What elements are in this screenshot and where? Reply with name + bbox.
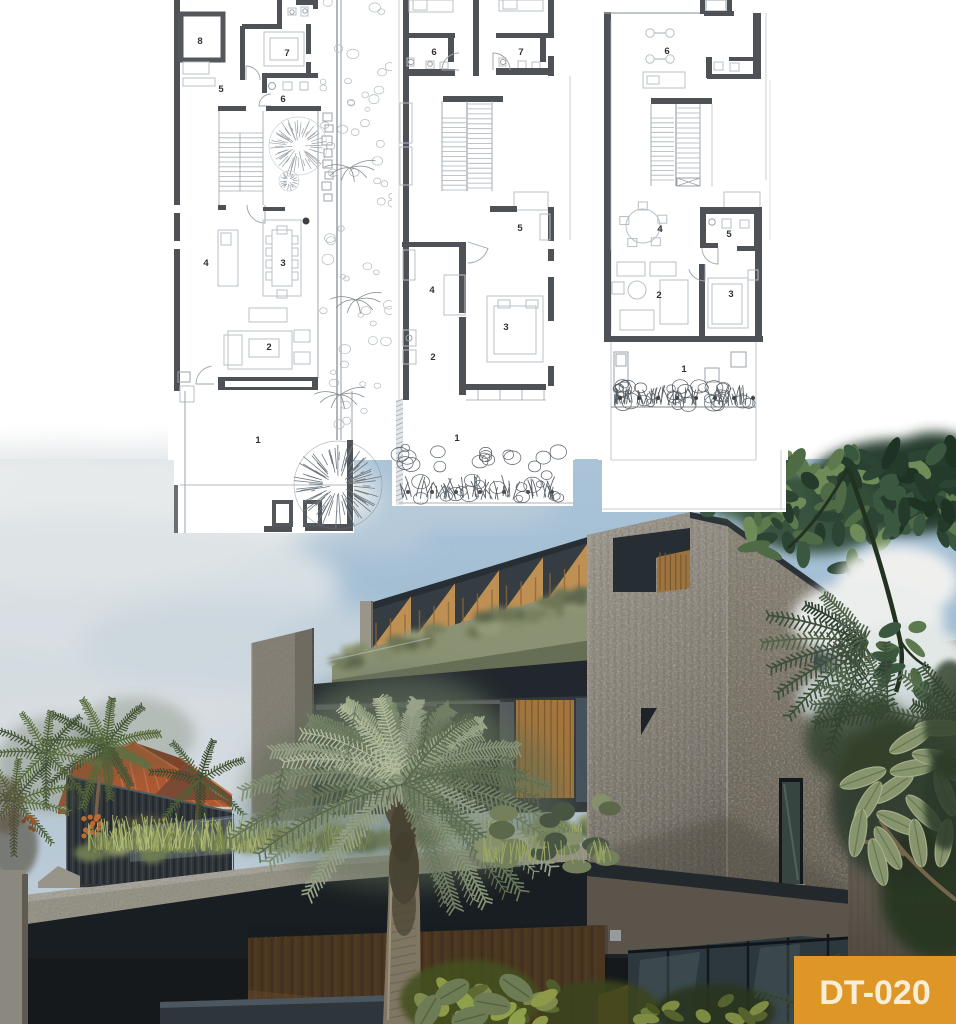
svg-text:2: 2 xyxy=(656,290,661,301)
svg-text:1: 1 xyxy=(681,364,687,375)
svg-text:1: 1 xyxy=(255,435,261,446)
svg-text:4: 4 xyxy=(657,224,663,235)
svg-text:5: 5 xyxy=(218,84,224,95)
svg-text:5: 5 xyxy=(517,223,523,234)
svg-text:2: 2 xyxy=(430,352,435,363)
svg-text:DT-020: DT-020 xyxy=(819,974,931,1012)
svg-text:6: 6 xyxy=(280,94,285,105)
svg-text:2: 2 xyxy=(266,342,271,353)
svg-text:7: 7 xyxy=(284,48,289,59)
svg-text:6: 6 xyxy=(431,47,436,58)
svg-text:4: 4 xyxy=(429,285,435,296)
svg-text:1: 1 xyxy=(454,433,460,444)
svg-text:5: 5 xyxy=(726,229,732,240)
svg-text:8: 8 xyxy=(197,36,202,47)
svg-text:6: 6 xyxy=(664,46,669,57)
svg-text:4: 4 xyxy=(203,258,209,269)
svg-text:3: 3 xyxy=(503,322,508,333)
svg-text:3: 3 xyxy=(728,289,733,300)
svg-text:7: 7 xyxy=(518,47,523,58)
svg-text:3: 3 xyxy=(280,258,285,269)
